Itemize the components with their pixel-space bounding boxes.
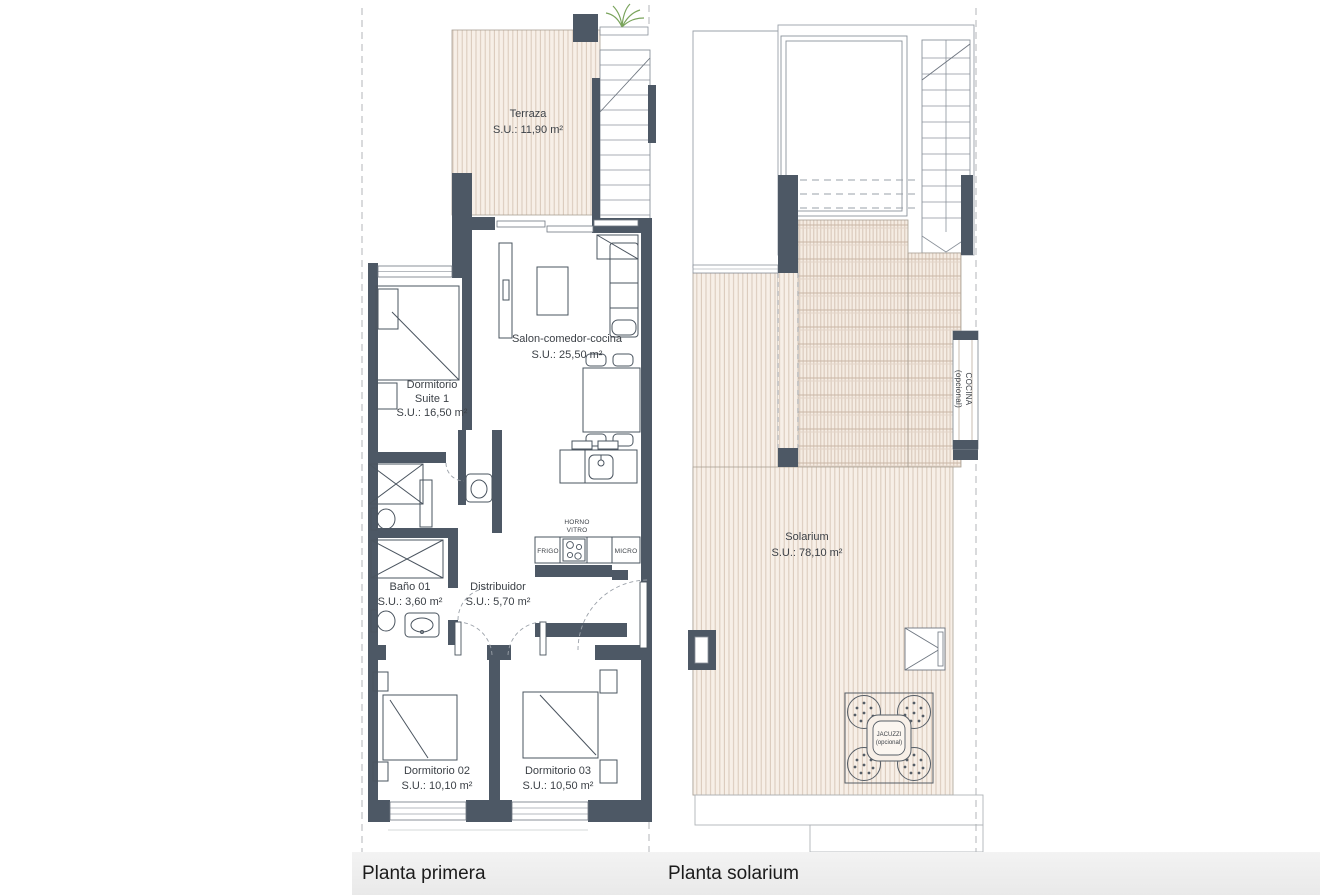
salon-area: S.U.: 25,50 m²: [532, 349, 603, 361]
balustrade: [693, 265, 778, 273]
terraza-decking: [452, 30, 600, 215]
suite1-name-1: Dormitorio: [407, 379, 458, 391]
cocina-opcional: COCINA (opcional): [953, 331, 978, 449]
courtyard-void: [781, 36, 907, 216]
plan-primera: FRIGO MICRO HORNO VITRO Terraza S.U.: 11…: [368, 4, 656, 830]
salon-name: Salon-comedor-cocina: [512, 333, 623, 345]
caption-planta-primera: Planta primera: [362, 863, 486, 885]
floorplan-drawing: FRIGO MICRO HORNO VITRO Terraza S.U.: 11…: [0, 0, 1320, 895]
ensuite-fixtures: [369, 464, 492, 530]
dorm03-name: Dormitorio 03: [525, 765, 591, 777]
horno-label-1: HORNO: [564, 519, 589, 526]
terraza-area: S.U.: 11,90 m²: [493, 124, 563, 136]
skylight: [905, 628, 945, 670]
frigo-label: FRIGO: [537, 548, 559, 555]
jacuzzi-name: JACUZZI: [877, 732, 902, 738]
stairs-primera: [600, 50, 650, 230]
windows-primera: [378, 220, 638, 830]
open-roof-outline: [693, 31, 778, 268]
solarium-area: S.U.: 78,10 m²: [772, 547, 843, 559]
plan-solarium: COCINA (opcional) JACUZZI (opcional): [688, 25, 983, 852]
bano01-name: Baño 01: [390, 581, 431, 593]
plant-icon: [600, 4, 648, 35]
caption-planta-solarium: Planta solarium: [668, 863, 799, 885]
caption-strip: Planta primera Planta solarium: [352, 852, 1320, 895]
jacuzzi-opcional-label: (opcional): [876, 740, 902, 746]
suite1-name-2: Suite 1: [415, 393, 449, 405]
bano01-area: S.U.: 3,60 m²: [378, 596, 443, 608]
dorm02-area: S.U.: 10,10 m²: [402, 780, 473, 792]
floorplan-page: FRIGO MICRO HORNO VITRO Terraza S.U.: 11…: [0, 0, 1320, 895]
pergola-grid-hatch: [798, 220, 908, 467]
exterior-steps: [695, 795, 983, 852]
pillar-window: [688, 630, 716, 670]
suite1-area: S.U.: 16,50 m²: [397, 407, 468, 419]
cocina-opcional-label: (opcional): [954, 370, 963, 408]
dorm02-name: Dormitorio 02: [404, 765, 470, 777]
micro-label: MICRO: [615, 548, 638, 555]
horno-label-2: VITRO: [567, 527, 588, 534]
terraza-name: Terraza: [510, 108, 548, 120]
kitchen: FRIGO MICRO HORNO VITRO: [535, 441, 640, 563]
dorm03-area: S.U.: 10,50 m²: [523, 780, 594, 792]
cocina-name: COCINA: [964, 373, 973, 406]
distribuidor-name: Distribuidor: [470, 581, 526, 593]
solarium-name: Solarium: [785, 531, 828, 543]
distribuidor-area: S.U.: 5,70 m²: [466, 596, 531, 608]
